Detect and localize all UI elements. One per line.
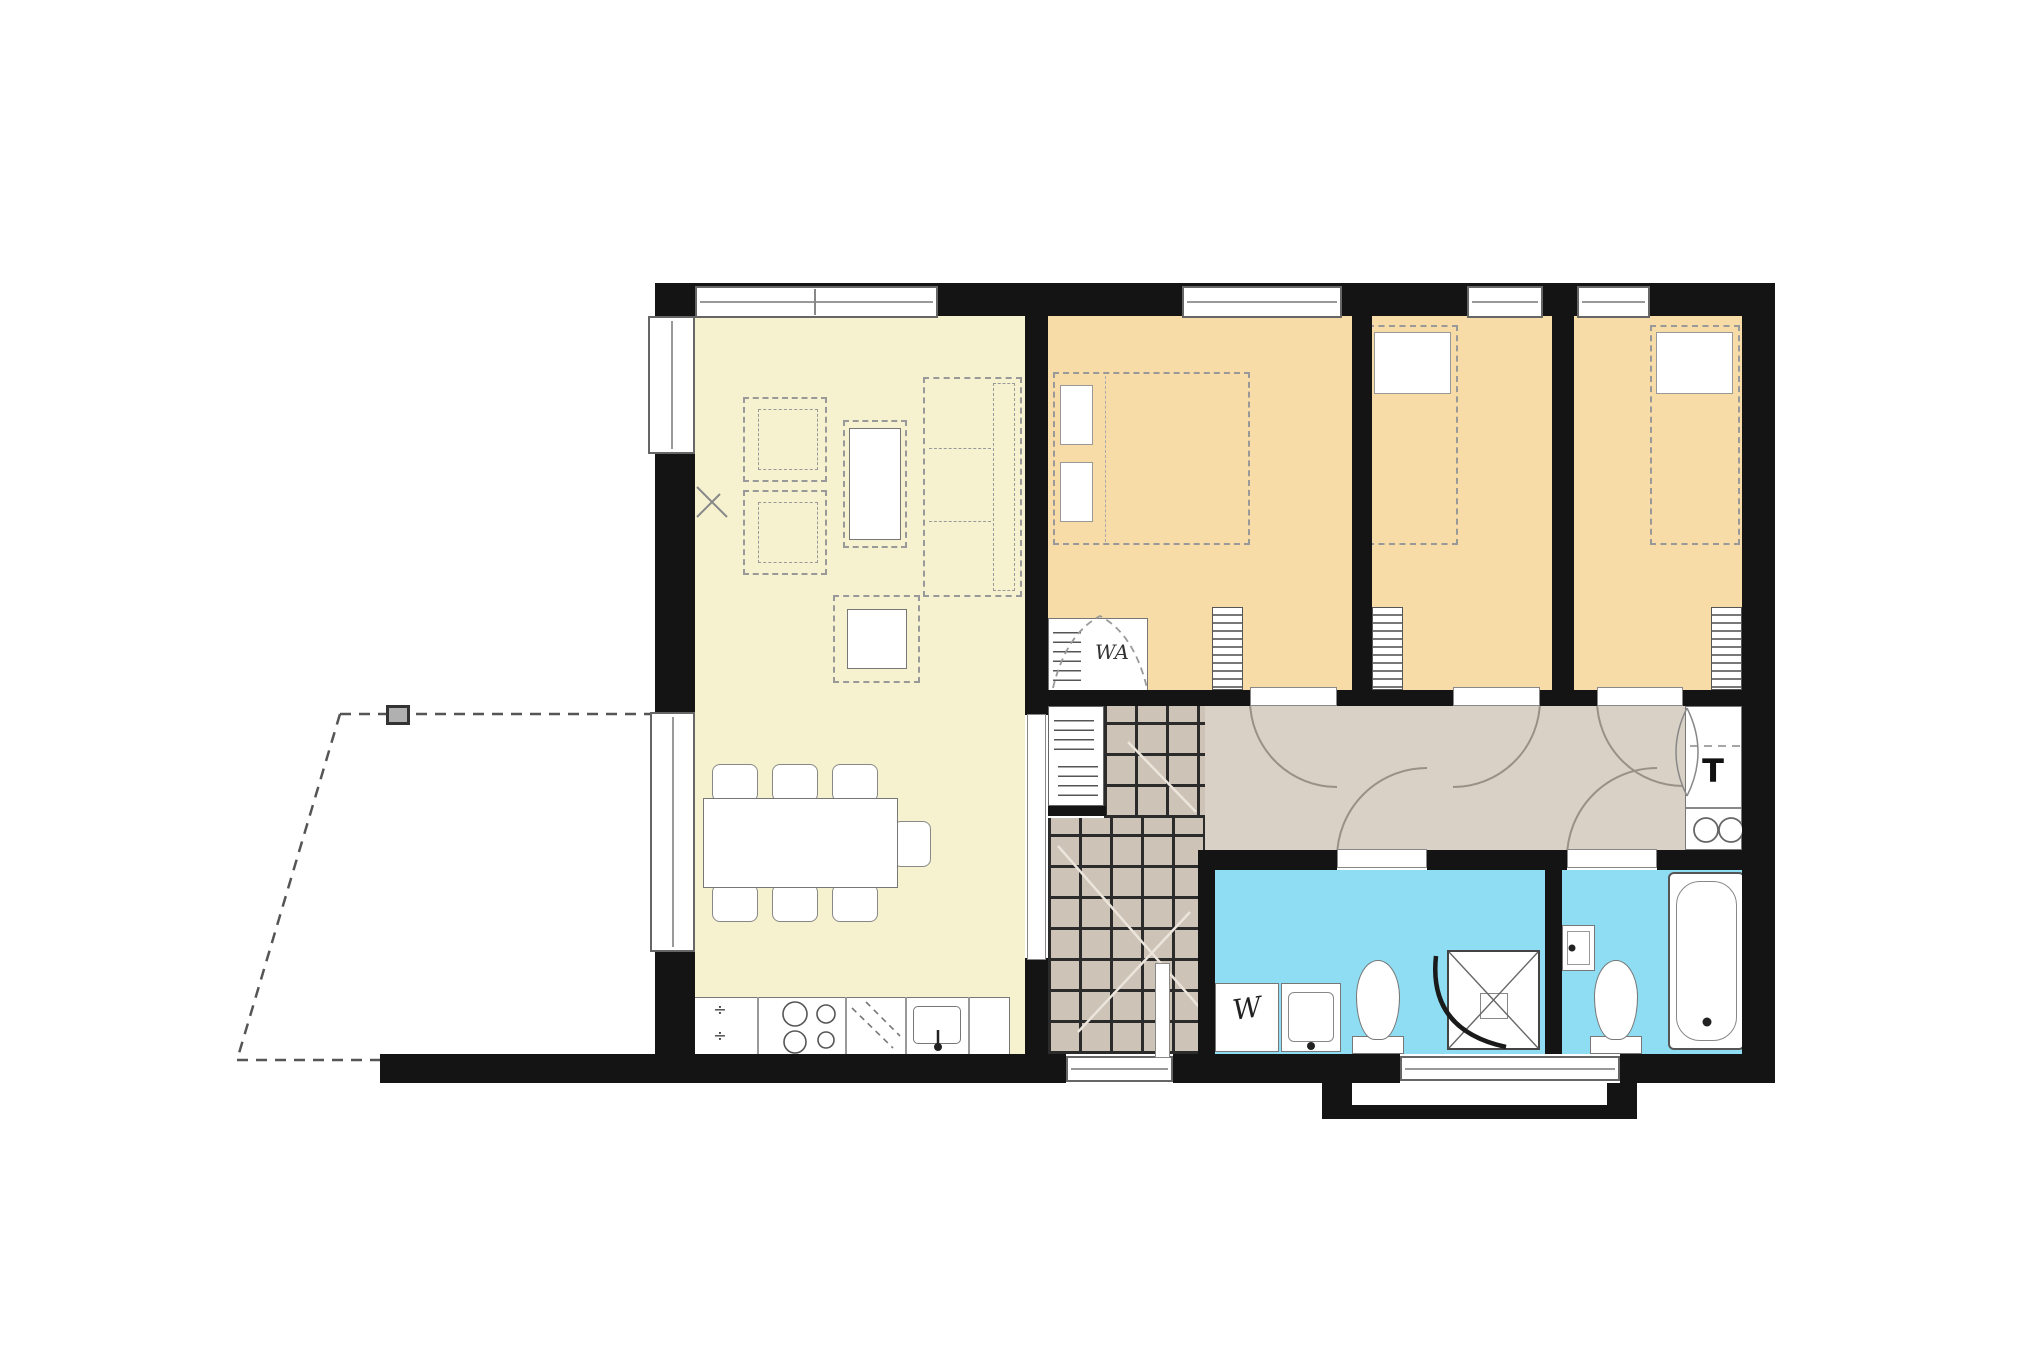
wall-segment [1545,870,1562,1054]
wall-segment [1173,1054,1400,1083]
window-living-left [648,316,695,454]
vanity-basin [1288,992,1334,1042]
wall-segment [655,283,695,320]
terrace-outline [237,714,340,1060]
wall-segment [1552,316,1574,690]
porch-wall [1322,1105,1637,1119]
radiator [1372,607,1403,690]
bathtub-inner [1676,881,1737,1041]
wall-segment [1427,850,1567,870]
window-living [695,286,938,318]
door-bedroom-1 [1250,687,1337,706]
door-living-entry [1027,714,1046,960]
kitchen-sink [913,1006,961,1044]
dishwasher-mark: ÷ [708,1000,732,1019]
counter-divider [757,997,759,1054]
bed-pillow [1656,332,1733,394]
shower-drain [1480,993,1508,1019]
washing-machine-label: W [1220,989,1274,1029]
door-bathroom-1 [1337,849,1427,868]
dining-chair [772,884,818,922]
toilet-bowl [1594,960,1638,1040]
wall-segment [1352,316,1372,690]
wall-segment [1025,958,1048,1054]
room-hallway [1205,706,1742,850]
tv-table-top [847,609,907,669]
closet-shelf-lines [1058,758,1098,800]
coffee-table-top [849,428,901,540]
wardrobe-label: WA [1082,640,1142,664]
dining-chair [893,821,931,867]
wall-segment [1025,316,1048,715]
radiator [1212,607,1243,690]
wardrobe-hatch [1053,624,1081,686]
bed-pillow [1060,462,1093,522]
terrace-post-marker [386,705,410,725]
dining-chair [832,764,878,802]
wall-segment [1540,690,1597,706]
door-bedroom-2 [1453,687,1540,706]
wall-segment [655,452,695,714]
terrace-sliding-door [650,712,695,952]
sofa-cushion-divider [929,448,991,449]
kitchen-counter [692,997,1010,1054]
wall-sink-basin [1567,931,1590,965]
wall-segment [1683,690,1742,706]
bed-blanket-line [1105,376,1106,542]
entry-tiled-floor-lower [1048,818,1205,1054]
door-bedroom-3 [1597,687,1683,706]
toilet-bowl [1356,960,1400,1040]
entry-tiled-floor-upper [1104,706,1205,818]
armchair-cushion [758,502,818,563]
door-bathroom-2 [1567,849,1657,868]
sofa-backrest [993,383,1015,591]
dining-chair [712,764,758,802]
dining-chair [772,764,818,802]
entry-door-threshold [1066,1056,1173,1082]
dishwasher-mark: ÷ [708,1026,732,1045]
wall-segment [1620,1054,1775,1083]
dining-chair [832,884,878,922]
radiator [1711,607,1742,690]
wall-segment [1048,806,1106,816]
sofa-cushion-divider [929,521,991,522]
wall-segment [380,1054,1066,1083]
counter-divider [968,997,970,1054]
wall-segment [1215,850,1337,870]
bed-pillow [1374,332,1451,394]
entry-door-leaf [1155,963,1170,1058]
counter-divider [845,997,847,1054]
wall-segment [1337,690,1453,706]
window-mullion [814,289,816,315]
wall-segment [1198,850,1215,1054]
counter-divider [905,997,907,1054]
floorplan-canvas: WA T W ÷ ÷ [0,0,2043,1365]
window-bedroom-3 [1577,286,1650,318]
dining-table [703,798,898,888]
wall-segment [1657,850,1742,870]
closet-shelf-lines [1054,712,1094,750]
wall-segment [1742,283,1775,1083]
wall-segment [1048,690,1250,706]
armchair-cushion [758,409,818,470]
dining-chair [712,884,758,922]
dryer-label: T [1693,752,1733,790]
window-bathroom [1400,1056,1620,1081]
porch-landing [1352,1083,1607,1107]
window-bedroom-1 [1182,286,1342,318]
bed-pillow [1060,385,1093,445]
window-bedroom-2 [1467,286,1543,318]
